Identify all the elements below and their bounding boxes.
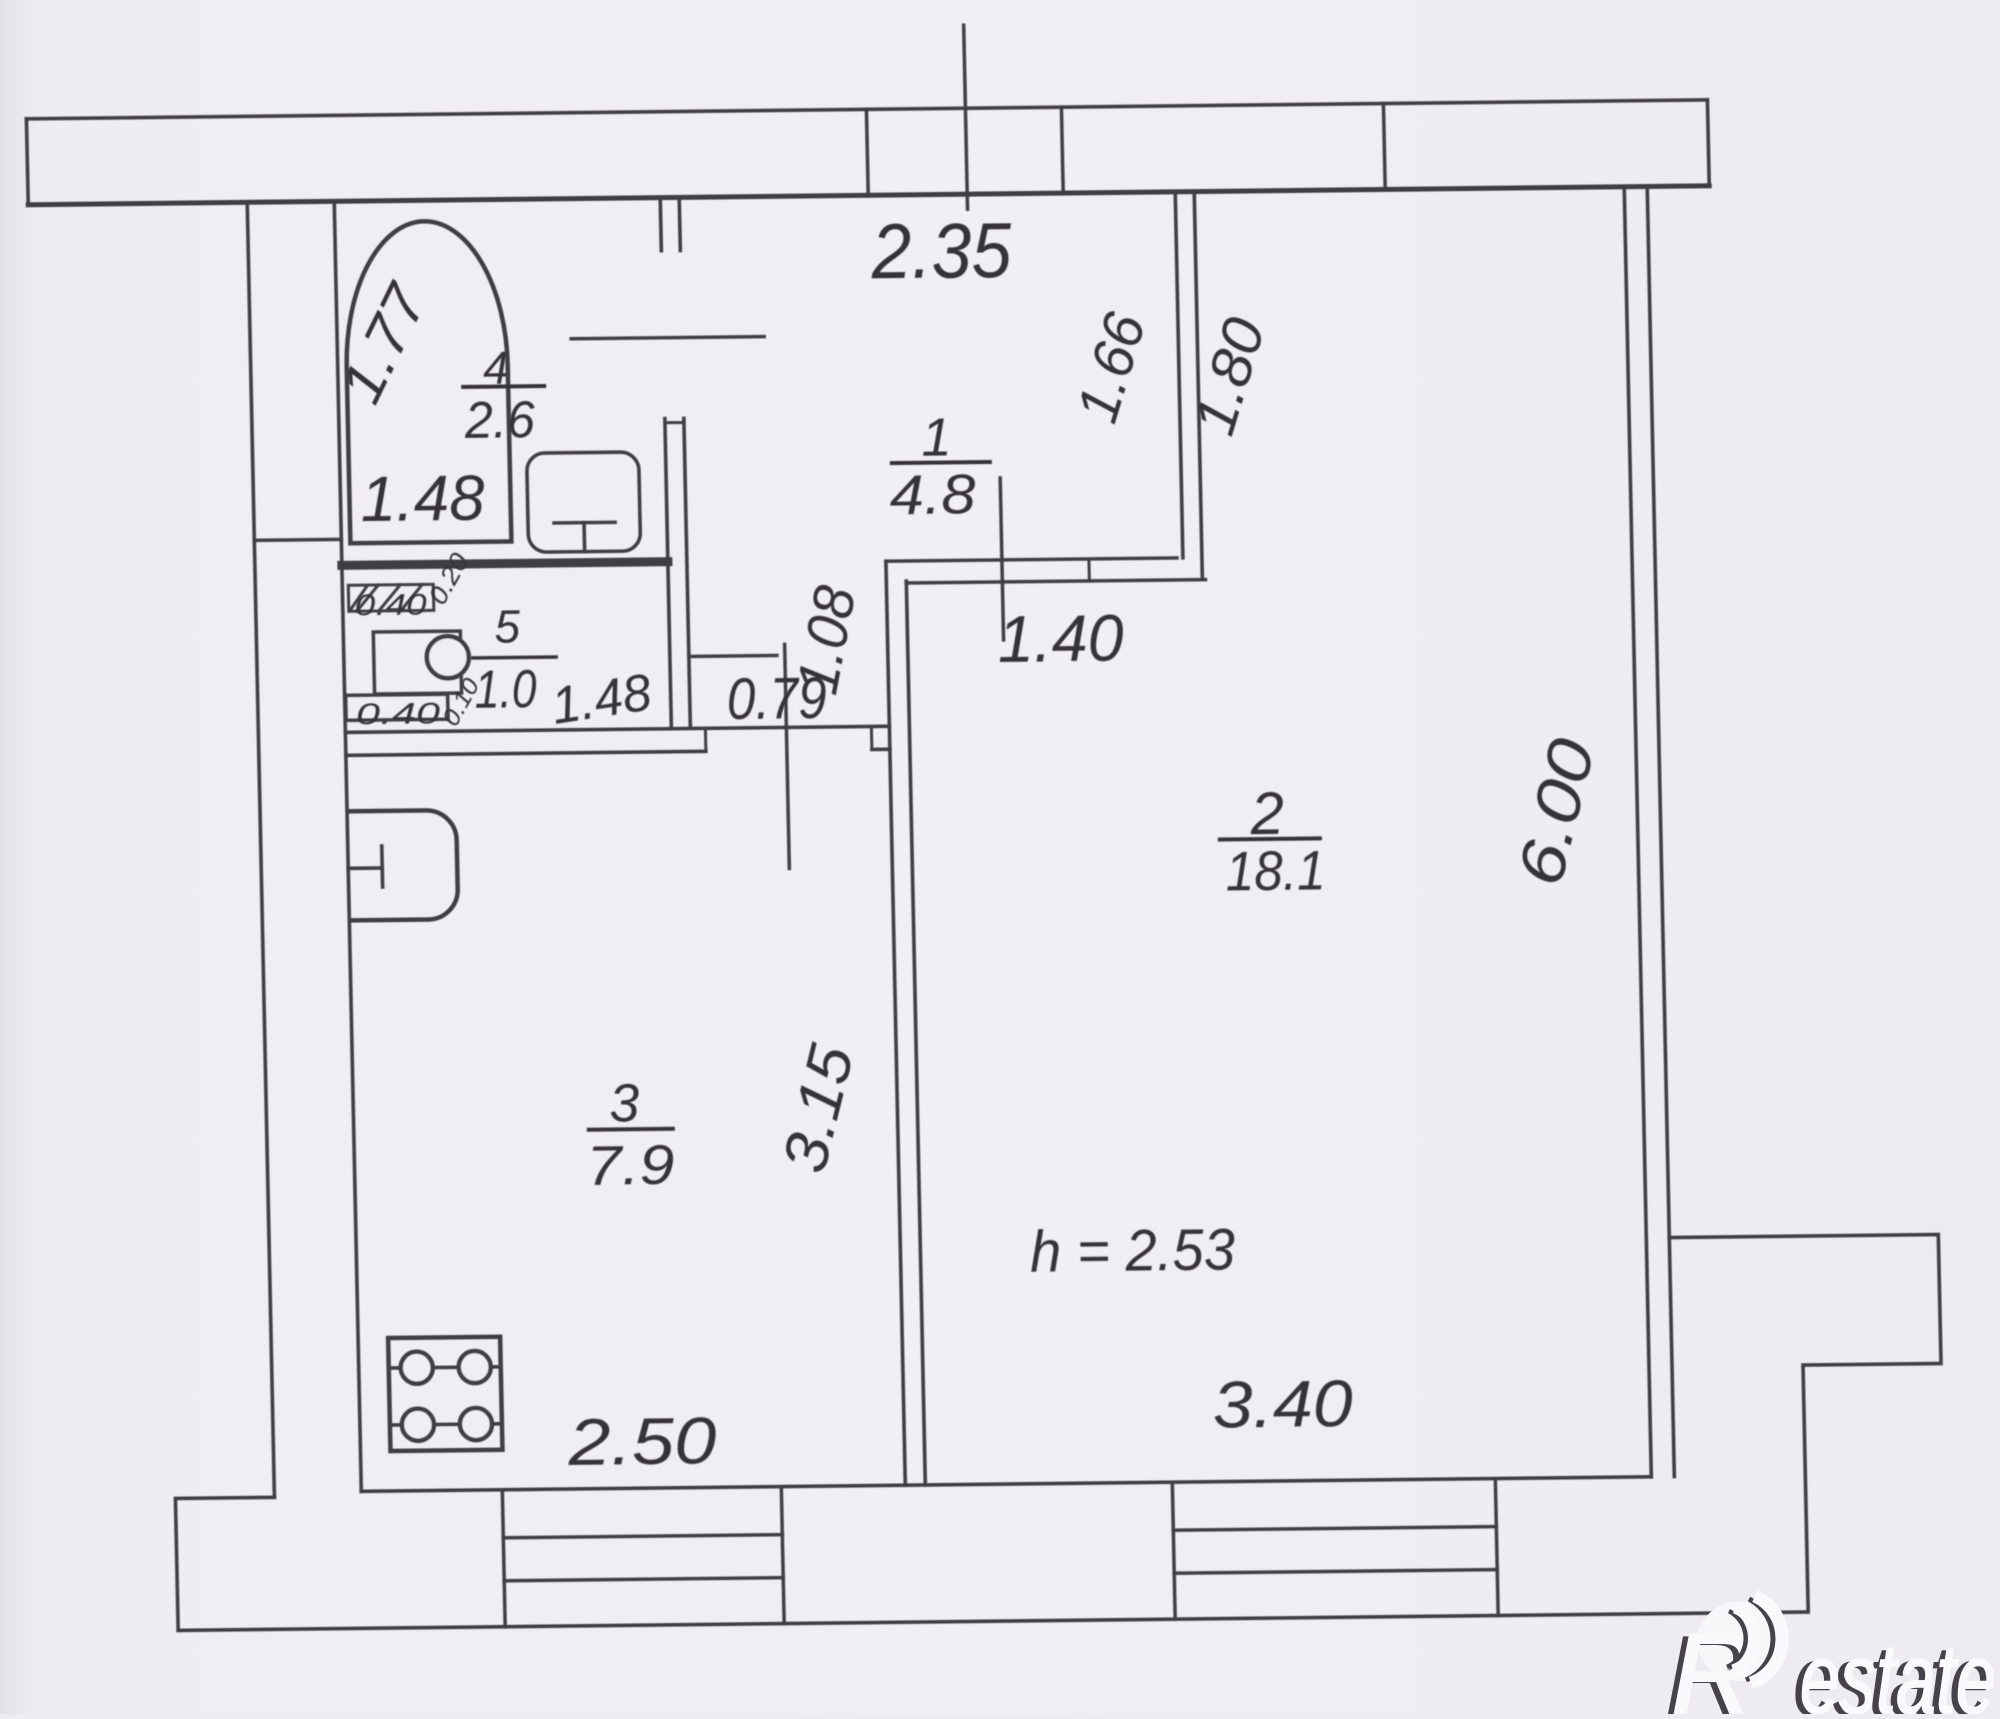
svg-text:7.9: 7.9: [586, 1133, 675, 1197]
svg-text:1.48: 1.48: [360, 462, 486, 535]
svg-text:h = 2.53: h = 2.53: [1029, 1217, 1235, 1284]
svg-text:2.35: 2.35: [870, 206, 1013, 296]
svg-text:3.40: 3.40: [1212, 1366, 1354, 1442]
svg-text:4.8: 4.8: [889, 462, 976, 526]
svg-text:5: 5: [494, 600, 521, 652]
svg-text:0.40: 0.40: [356, 697, 441, 731]
svg-text:18.1: 18.1: [1225, 838, 1326, 902]
svg-text:1: 1: [921, 407, 952, 467]
svg-text:2.6: 2.6: [463, 391, 535, 450]
svg-text:estate: estate: [1800, 1623, 1996, 1714]
svg-text:1.40: 1.40: [997, 601, 1125, 676]
svg-text:0.40: 0.40: [354, 588, 427, 622]
svg-text:2.50: 2.50: [566, 1403, 717, 1479]
svg-text:3: 3: [609, 1073, 640, 1133]
